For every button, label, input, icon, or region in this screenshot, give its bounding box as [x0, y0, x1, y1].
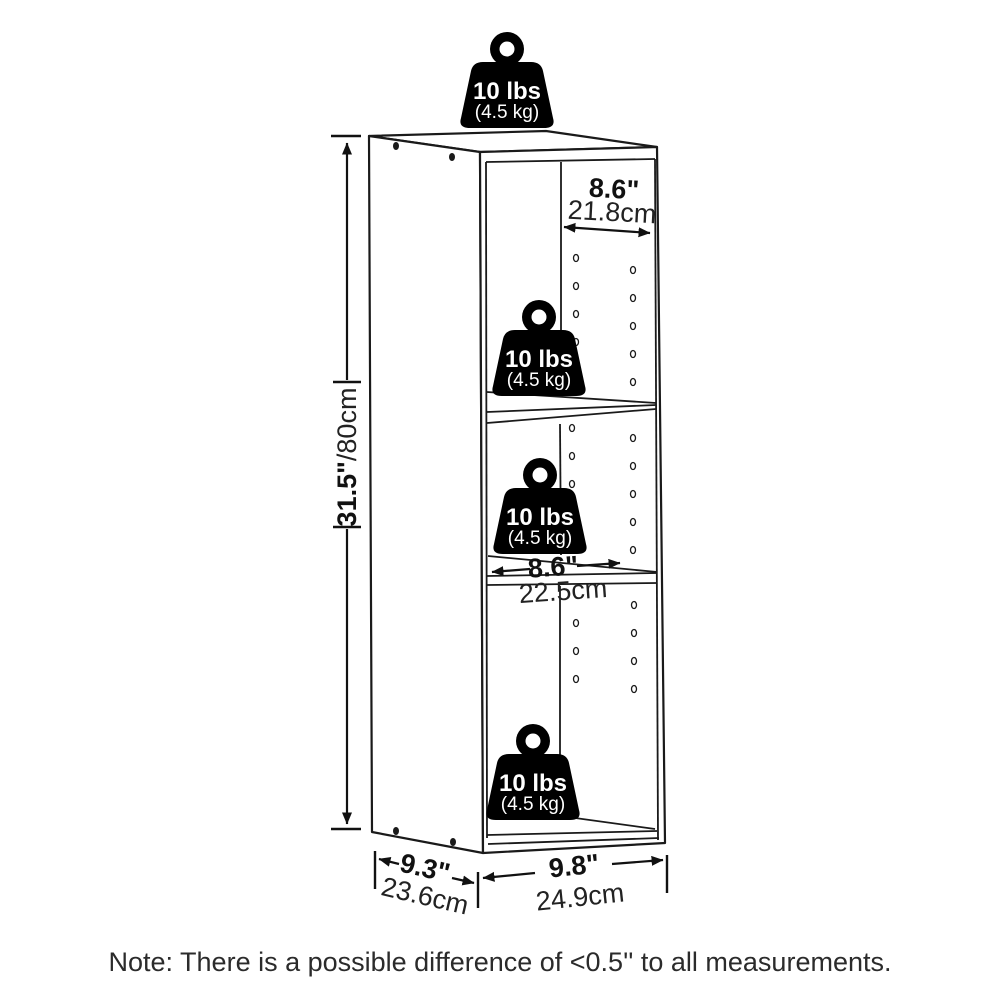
- bottom-width-inches: 9.8": [547, 848, 600, 883]
- cabinet-left-panel: [369, 136, 483, 853]
- weight-capacity-lbs: 10 lbs: [506, 504, 574, 531]
- weight-icon-top: 10 lbs (4.5 kg): [460, 32, 553, 128]
- weight-capacity-lbs: 10 lbs: [499, 770, 567, 797]
- dimension-depth: 9.3" 23.6cm: [375, 848, 474, 921]
- middle-width-cm: 22.5cm: [518, 573, 608, 609]
- weight-capacity-lbs: 10 lbs: [473, 78, 541, 105]
- dimension-height: 31.5"/80cm: [331, 136, 362, 829]
- weight-capacity-kg: (4.5 kg): [508, 528, 572, 549]
- dimension-diagram-canvas: 10 lbs (4.5 kg) 10 lbs (4.5 kg) 10 lbs (…: [0, 0, 1000, 1000]
- bottom-width-cm: 24.9cm: [534, 877, 625, 916]
- weight-capacity-kg: (4.5 kg): [501, 794, 565, 815]
- weight-capacity-lbs: 10 lbs: [505, 346, 573, 373]
- shelf-dimension-diagram: 10 lbs (4.5 kg) 10 lbs (4.5 kg) 10 lbs (…: [0, 0, 1000, 1000]
- height-label: 31.5"/80cm: [332, 388, 362, 527]
- dimension-bottom-width: 9.8" 24.9cm: [478, 848, 667, 916]
- top-width-cm: 21.8cm: [567, 195, 657, 230]
- weight-capacity-kg: (4.5 kg): [507, 370, 571, 391]
- weight-capacity-kg: (4.5 kg): [475, 102, 539, 123]
- note-text: Note: There is a possible difference of …: [109, 947, 892, 977]
